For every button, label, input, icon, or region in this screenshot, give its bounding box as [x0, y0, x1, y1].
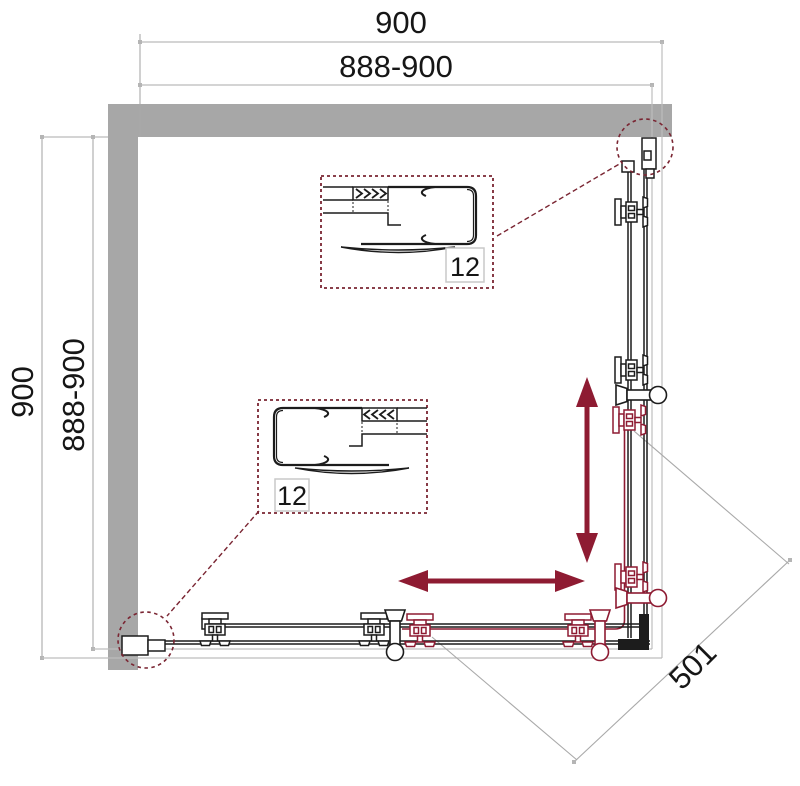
drawing-svg: 900 888-900 900 888-900 501	[0, 0, 800, 786]
sliding-door-red-edge	[402, 430, 625, 629]
callout-leader-top	[497, 163, 621, 236]
dim-diagonal-label: 501	[662, 635, 723, 696]
roller-bottom-1	[200, 613, 230, 646]
roller-right-2	[615, 355, 648, 385]
handle-knob-right-black	[616, 385, 667, 405]
dim-top-outer-label: 900	[375, 5, 427, 40]
dim-left-inner-label: 888-900	[56, 338, 91, 452]
roller-bottom-2	[359, 613, 389, 646]
wall-profile-bottom-left	[122, 636, 165, 655]
wall-left	[108, 104, 138, 670]
roller-right-red-2	[615, 562, 648, 592]
roller-right-1	[615, 197, 648, 227]
sliding-door-right	[402, 167, 631, 638]
callout-leader-bottom	[167, 511, 259, 616]
roller-right-red-1	[613, 405, 646, 435]
roller-bottom-red-2	[563, 614, 593, 647]
slide-arrow-vertical-icon	[576, 377, 598, 563]
detail-callout-bottom: 12	[258, 400, 427, 513]
callout-label-bottom: 12	[277, 481, 307, 511]
detail-callout-top: 12	[321, 176, 493, 288]
dim-top-inner-label: 888-900	[339, 49, 453, 84]
corner-bracket	[618, 614, 649, 650]
dim-left-outer-label: 900	[5, 366, 40, 418]
wall-top	[108, 104, 672, 137]
dimension-diagonal	[432, 431, 792, 764]
door-top-cap-right	[622, 161, 634, 172]
callout-label-top: 12	[450, 252, 480, 282]
slide-arrow-horizontal-icon	[398, 570, 585, 592]
handle-knob-bottom-red	[590, 610, 610, 661]
shower-enclosure-technical-drawing: 900 888-900 900 888-900 501	[0, 0, 800, 786]
roller-bottom-red-1	[405, 614, 435, 647]
handle-knob-right-red	[616, 588, 667, 608]
dimension-left-inner	[91, 135, 95, 651]
handle-knob-bottom-black	[385, 610, 405, 661]
